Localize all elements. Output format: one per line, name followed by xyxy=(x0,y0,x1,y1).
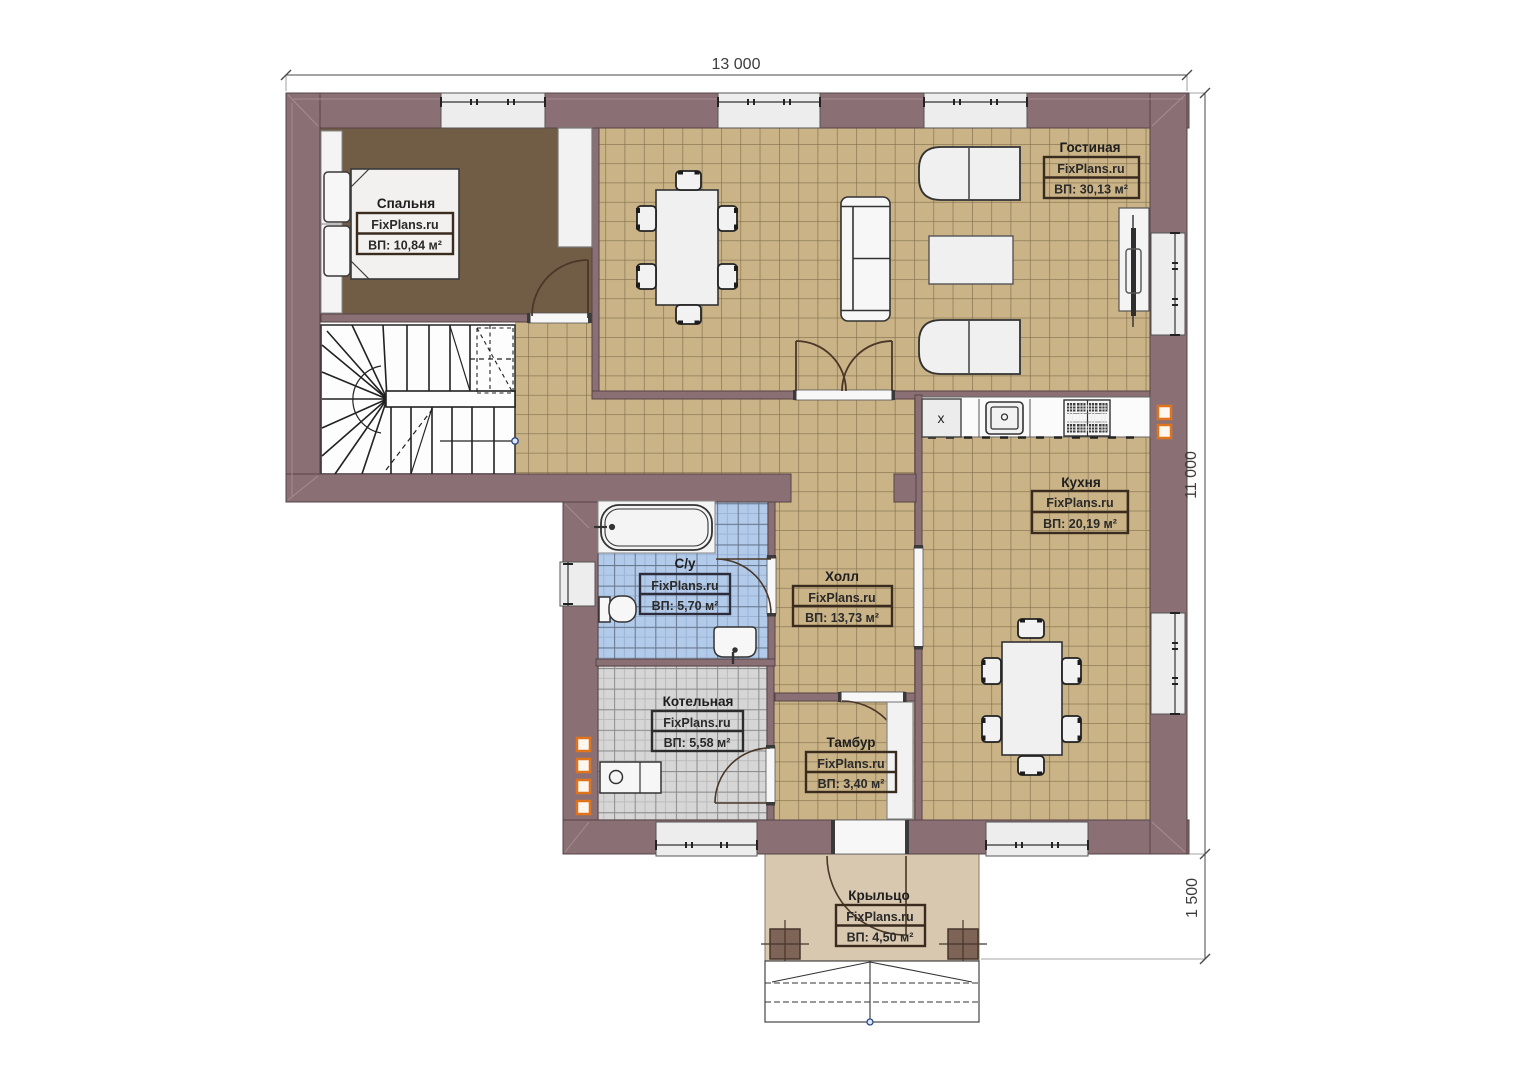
svg-text:FixPlans.ru: FixPlans.ru xyxy=(808,591,875,605)
svg-text:ВП: 10,84 м²: ВП: 10,84 м² xyxy=(368,239,442,253)
svg-text:ВП: 20,19 м²: ВП: 20,19 м² xyxy=(1043,517,1117,531)
svg-text:Крыльцо: Крыльцо xyxy=(848,888,909,903)
svg-text:Спальня: Спальня xyxy=(377,196,435,211)
svg-text:ВП: 3,40 м²: ВП: 3,40 м² xyxy=(818,777,885,791)
svg-text:Котельная: Котельная xyxy=(663,694,734,709)
svg-text:Кухня: Кухня xyxy=(1061,475,1100,490)
svg-text:Холл: Холл xyxy=(825,569,859,584)
svg-text:FixPlans.ru: FixPlans.ru xyxy=(846,910,913,924)
svg-text:FixPlans.ru: FixPlans.ru xyxy=(1057,162,1124,176)
svg-text:13 000: 13 000 xyxy=(712,56,761,73)
svg-text:Тамбур: Тамбур xyxy=(827,735,876,750)
svg-text:ВП: 5,70 м²: ВП: 5,70 м² xyxy=(652,599,719,613)
svg-text:FixPlans.ru: FixPlans.ru xyxy=(663,716,730,730)
svg-text:FixPlans.ru: FixPlans.ru xyxy=(817,757,884,771)
svg-text:С/у: С/у xyxy=(674,556,696,571)
svg-text:ВП: 5,58 м²: ВП: 5,58 м² xyxy=(664,736,731,750)
svg-text:Гостиная: Гостиная xyxy=(1059,140,1120,155)
svg-text:ВП: 13,73 м²: ВП: 13,73 м² xyxy=(805,611,879,625)
svg-text:FixPlans.ru: FixPlans.ru xyxy=(651,579,718,593)
svg-text:ВП: 30,13 м²: ВП: 30,13 м² xyxy=(1054,183,1128,197)
svg-text:1 500: 1 500 xyxy=(1184,878,1201,918)
svg-text:11 000: 11 000 xyxy=(1183,451,1200,499)
svg-text:FixPlans.ru: FixPlans.ru xyxy=(371,218,438,232)
svg-text:FixPlans.ru: FixPlans.ru xyxy=(1046,496,1113,510)
svg-text:x: x xyxy=(938,410,945,426)
svg-text:ВП: 4,50 м²: ВП: 4,50 м² xyxy=(847,931,914,945)
